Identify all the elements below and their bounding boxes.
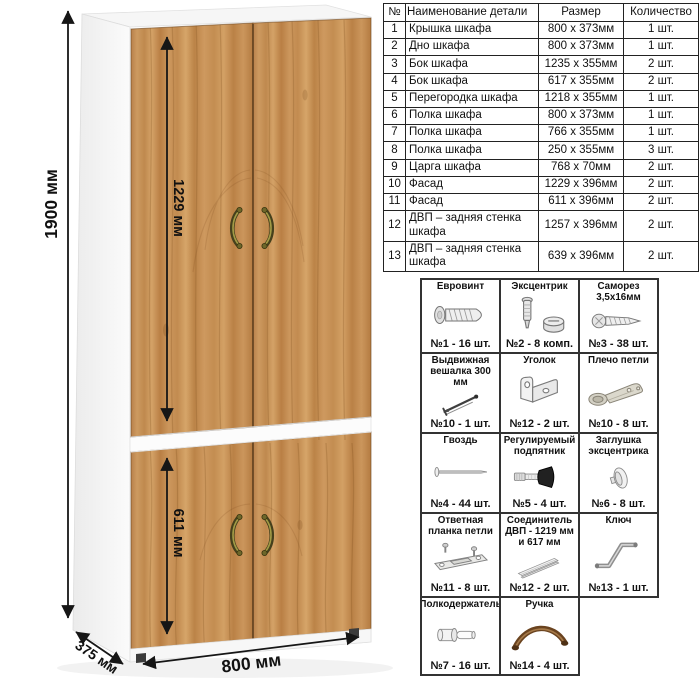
hardware-item-title: Эксцентрик	[511, 282, 567, 293]
table-row: 10Фасад1229 x 396мм2 шт.	[384, 176, 699, 193]
hinge-arm-icon	[581, 367, 656, 418]
table-row: 11Фасад611 x 396мм2 шт.	[384, 193, 699, 210]
hardware-item-label: №1 - 16 шт.	[430, 338, 490, 351]
part-qty: 2 шт.	[624, 73, 699, 90]
lower-facade-dimension-label: 611 мм	[170, 509, 186, 558]
part-name: Полка шкафа	[406, 142, 539, 159]
assembly-sheet: 1900 мм 1229 мм 611 мм 800 мм 375 мм № Н…	[0, 0, 700, 700]
hardware-item: Плечо петли №10 - 8 шт.	[580, 354, 659, 434]
hardware-item-label: №4 - 44 шт.	[430, 498, 490, 511]
hardware-grid: Евровинт №1 - 16 шт. Эксцентрик	[420, 278, 659, 676]
part-qty: 2 шт.	[624, 176, 699, 193]
part-size: 766 x 355мм	[539, 125, 624, 142]
table-row: 4Бок шкафа617 x 355мм2 шт.	[384, 73, 699, 90]
part-name: Полка шкафа	[406, 107, 539, 124]
header-name: Наименование детали	[406, 4, 539, 22]
part-num: 3	[384, 56, 406, 73]
hex-key-icon	[581, 527, 656, 582]
hardware-item-label: №12 - 2 шт.	[509, 582, 569, 595]
cabinet-foot-right	[349, 628, 359, 637]
part-size: 611 x 396мм	[539, 193, 624, 210]
hardware-item: Эксцентрик №2 - 8 комп.	[501, 280, 580, 354]
table-row: 9Царга шкафа768 x 70мм2 шт.	[384, 159, 699, 176]
euro-screw-icon	[423, 293, 498, 338]
hardware-item-title: Регулируемый подпятник	[502, 436, 577, 458]
part-num: 1	[384, 22, 406, 39]
table-row: 13ДВП – задняя стенка шкафа639 x 396мм2 …	[384, 241, 699, 272]
part-num: 11	[384, 193, 406, 210]
part-num: 5	[384, 90, 406, 107]
hardware-item-label: №2 - 8 комп.	[506, 338, 573, 351]
corner-bracket-icon	[502, 367, 577, 418]
part-num: 12	[384, 211, 406, 242]
hardware-item-label: №13 - 1 шт.	[588, 582, 648, 595]
hardware-item-title: Евровинт	[437, 282, 484, 293]
hinge-plate-icon	[423, 538, 498, 582]
hardware-item-title: Уголок	[523, 356, 555, 367]
hardware-item: Регулируемый подпятник №5 - 4 шт.	[501, 434, 580, 514]
cabinet-foot-left	[136, 653, 146, 663]
part-name: Полка шкафа	[406, 125, 539, 142]
hardware-item-label: №3 - 38 шт.	[588, 338, 648, 351]
shelf-pin-icon	[423, 611, 498, 660]
parts-table: № Наименование детали Размер Количество …	[383, 3, 699, 272]
part-size: 768 x 70мм	[539, 159, 624, 176]
part-name: Бок шкафа	[406, 56, 539, 73]
part-num: 4	[384, 73, 406, 90]
table-row: 7Полка шкафа766 x 355мм1 шт.	[384, 125, 699, 142]
table-row: 3Бок шкафа1235 x 355мм2 шт.	[384, 56, 699, 73]
hardware-item-title: Соединитель ДВП - 1219 мм и 617 мм	[502, 516, 577, 549]
part-size: 800 x 373мм	[539, 107, 624, 124]
hardware-item-title: Заглушка эксцентрика	[581, 436, 656, 458]
part-num: 10	[384, 176, 406, 193]
part-size: 800 x 373мм	[539, 39, 624, 56]
tapping-screw-icon	[581, 304, 656, 338]
table-row: 1Крышка шкафа800 x 373мм1 шт.	[384, 22, 699, 39]
hardware-item: Саморез 3,5x16мм №3 - 38 шт.	[580, 280, 659, 354]
part-size: 800 x 373мм	[539, 22, 624, 39]
part-qty: 1 шт.	[624, 90, 699, 107]
part-qty: 1 шт.	[624, 39, 699, 56]
hardware-item-title: Плечо петли	[588, 356, 649, 367]
part-size: 1229 x 396мм	[539, 176, 624, 193]
hardware-item-title: Полкодержатель	[422, 600, 501, 611]
part-name: Царга шкафа	[406, 159, 539, 176]
hardware-item-title: Ключ	[606, 516, 632, 527]
part-name: ДВП – задняя стенка шкафа	[406, 211, 539, 242]
part-num: 9	[384, 159, 406, 176]
upper-facade-dimension-label: 1229 мм	[170, 179, 186, 237]
wardrobe-illustration: 1900 мм 1229 мм 611 мм 800 мм 375 мм	[0, 0, 420, 700]
eccentric-cam-icon	[502, 293, 577, 338]
part-qty: 1 шт.	[624, 107, 699, 124]
part-size: 1235 x 355мм	[539, 56, 624, 73]
part-qty: 2 шт.	[624, 211, 699, 242]
pullout-hanger-icon	[423, 389, 498, 418]
hardware-item-title: Ручка	[525, 600, 553, 611]
part-name: Фасад	[406, 176, 539, 193]
header-size: Размер	[539, 4, 624, 22]
table-row: 5Перегородка шкафа1218 x 355мм1 шт.	[384, 90, 699, 107]
header-qty: Количество	[624, 4, 699, 22]
nail-icon	[423, 447, 498, 498]
hardware-item-title: Гвоздь	[443, 436, 477, 447]
part-size: 250 x 355мм	[539, 142, 624, 159]
part-num: 13	[384, 241, 406, 272]
part-qty: 2 шт.	[624, 241, 699, 272]
part-name: Перегородка шкафа	[406, 90, 539, 107]
adjustable-foot-icon	[502, 458, 577, 498]
hardware-item-label: №12 - 2 шт.	[509, 418, 569, 431]
part-num: 6	[384, 107, 406, 124]
table-row: 2Дно шкафа800 x 373мм1 шт.	[384, 39, 699, 56]
hardware-item-label: №7 - 16 шт.	[430, 660, 490, 673]
handle-icon	[502, 611, 577, 660]
part-num: 7	[384, 125, 406, 142]
header-num: №	[384, 4, 406, 22]
part-qty: 1 шт.	[624, 22, 699, 39]
hardware-item: Уголок №12 - 2 шт.	[501, 354, 580, 434]
hardware-item: Ключ №13 - 1 шт.	[580, 514, 659, 598]
hdf-connector-icon	[502, 549, 577, 582]
part-qty: 2 шт.	[624, 56, 699, 73]
hardware-item-title: Ответная планка петли	[423, 516, 498, 538]
part-name: ДВП – задняя стенка шкафа	[406, 241, 539, 272]
cam-cap-icon	[581, 458, 656, 498]
table-row: 6Полка шкафа800 x 373мм1 шт.	[384, 107, 699, 124]
hardware-item: Заглушка эксцентрика №6 - 8 шт.	[580, 434, 659, 514]
hardware-item: Полкодержатель №7 - 16 шт.	[422, 598, 501, 676]
table-header-row: № Наименование детали Размер Количество	[384, 4, 699, 22]
part-name: Крышка шкафа	[406, 22, 539, 39]
hardware-item-label: №5 - 4 шт.	[513, 498, 567, 511]
part-qty: 3 шт.	[624, 142, 699, 159]
part-num: 8	[384, 142, 406, 159]
hardware-item: Соединитель ДВП - 1219 мм и 617 мм №12 -…	[501, 514, 580, 598]
part-qty: 2 шт.	[624, 159, 699, 176]
hardware-item: Ответная планка петли №11 - 8 шт.	[422, 514, 501, 598]
height-dimension-label: 1900 мм	[41, 169, 61, 239]
cabinet-side-panel	[73, 14, 130, 662]
hardware-item-title: Выдвижная вешалка 300 мм	[423, 356, 498, 389]
part-qty: 1 шт.	[624, 125, 699, 142]
table-row: 12ДВП – задняя стенка шкафа1257 x 396мм2…	[384, 211, 699, 242]
hardware-item-label: №10 - 1 шт.	[430, 418, 490, 431]
hardware-item-label: №14 - 4 шт.	[509, 660, 569, 673]
hardware-item-title: Саморез 3,5x16мм	[581, 282, 656, 304]
hardware-item: Выдвижная вешалка 300 мм №10 - 1 шт.	[422, 354, 501, 434]
part-size: 639 x 396мм	[539, 241, 624, 272]
hardware-item: Ручка №14 - 4 шт.	[501, 598, 580, 676]
hardware-item: Евровинт №1 - 16 шт.	[422, 280, 501, 354]
hardware-item: Гвоздь №4 - 44 шт.	[422, 434, 501, 514]
part-name: Бок шкафа	[406, 73, 539, 90]
part-size: 1218 x 355мм	[539, 90, 624, 107]
part-qty: 2 шт.	[624, 193, 699, 210]
hardware-item-label: №11 - 8 шт.	[431, 582, 491, 595]
part-num: 2	[384, 39, 406, 56]
table-row: 8Полка шкафа250 x 355мм3 шт.	[384, 142, 699, 159]
part-name: Фасад	[406, 193, 539, 210]
part-size: 1257 x 396мм	[539, 211, 624, 242]
part-size: 617 x 355мм	[539, 73, 624, 90]
hardware-item-label: №10 - 8 шт.	[588, 418, 648, 431]
hardware-item-label: №6 - 8 шт.	[592, 498, 646, 511]
part-name: Дно шкафа	[406, 39, 539, 56]
